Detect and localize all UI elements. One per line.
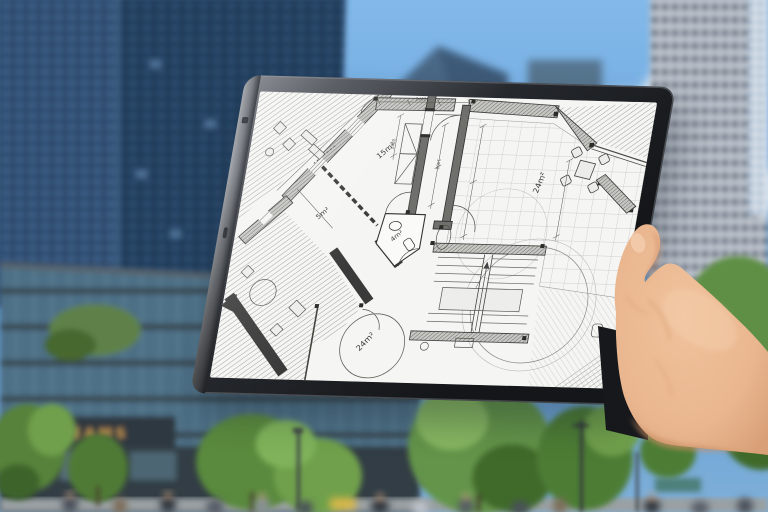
photo-scene: BEAMS	[0, 0, 768, 512]
hand-holding-tablet	[0, 0, 768, 512]
